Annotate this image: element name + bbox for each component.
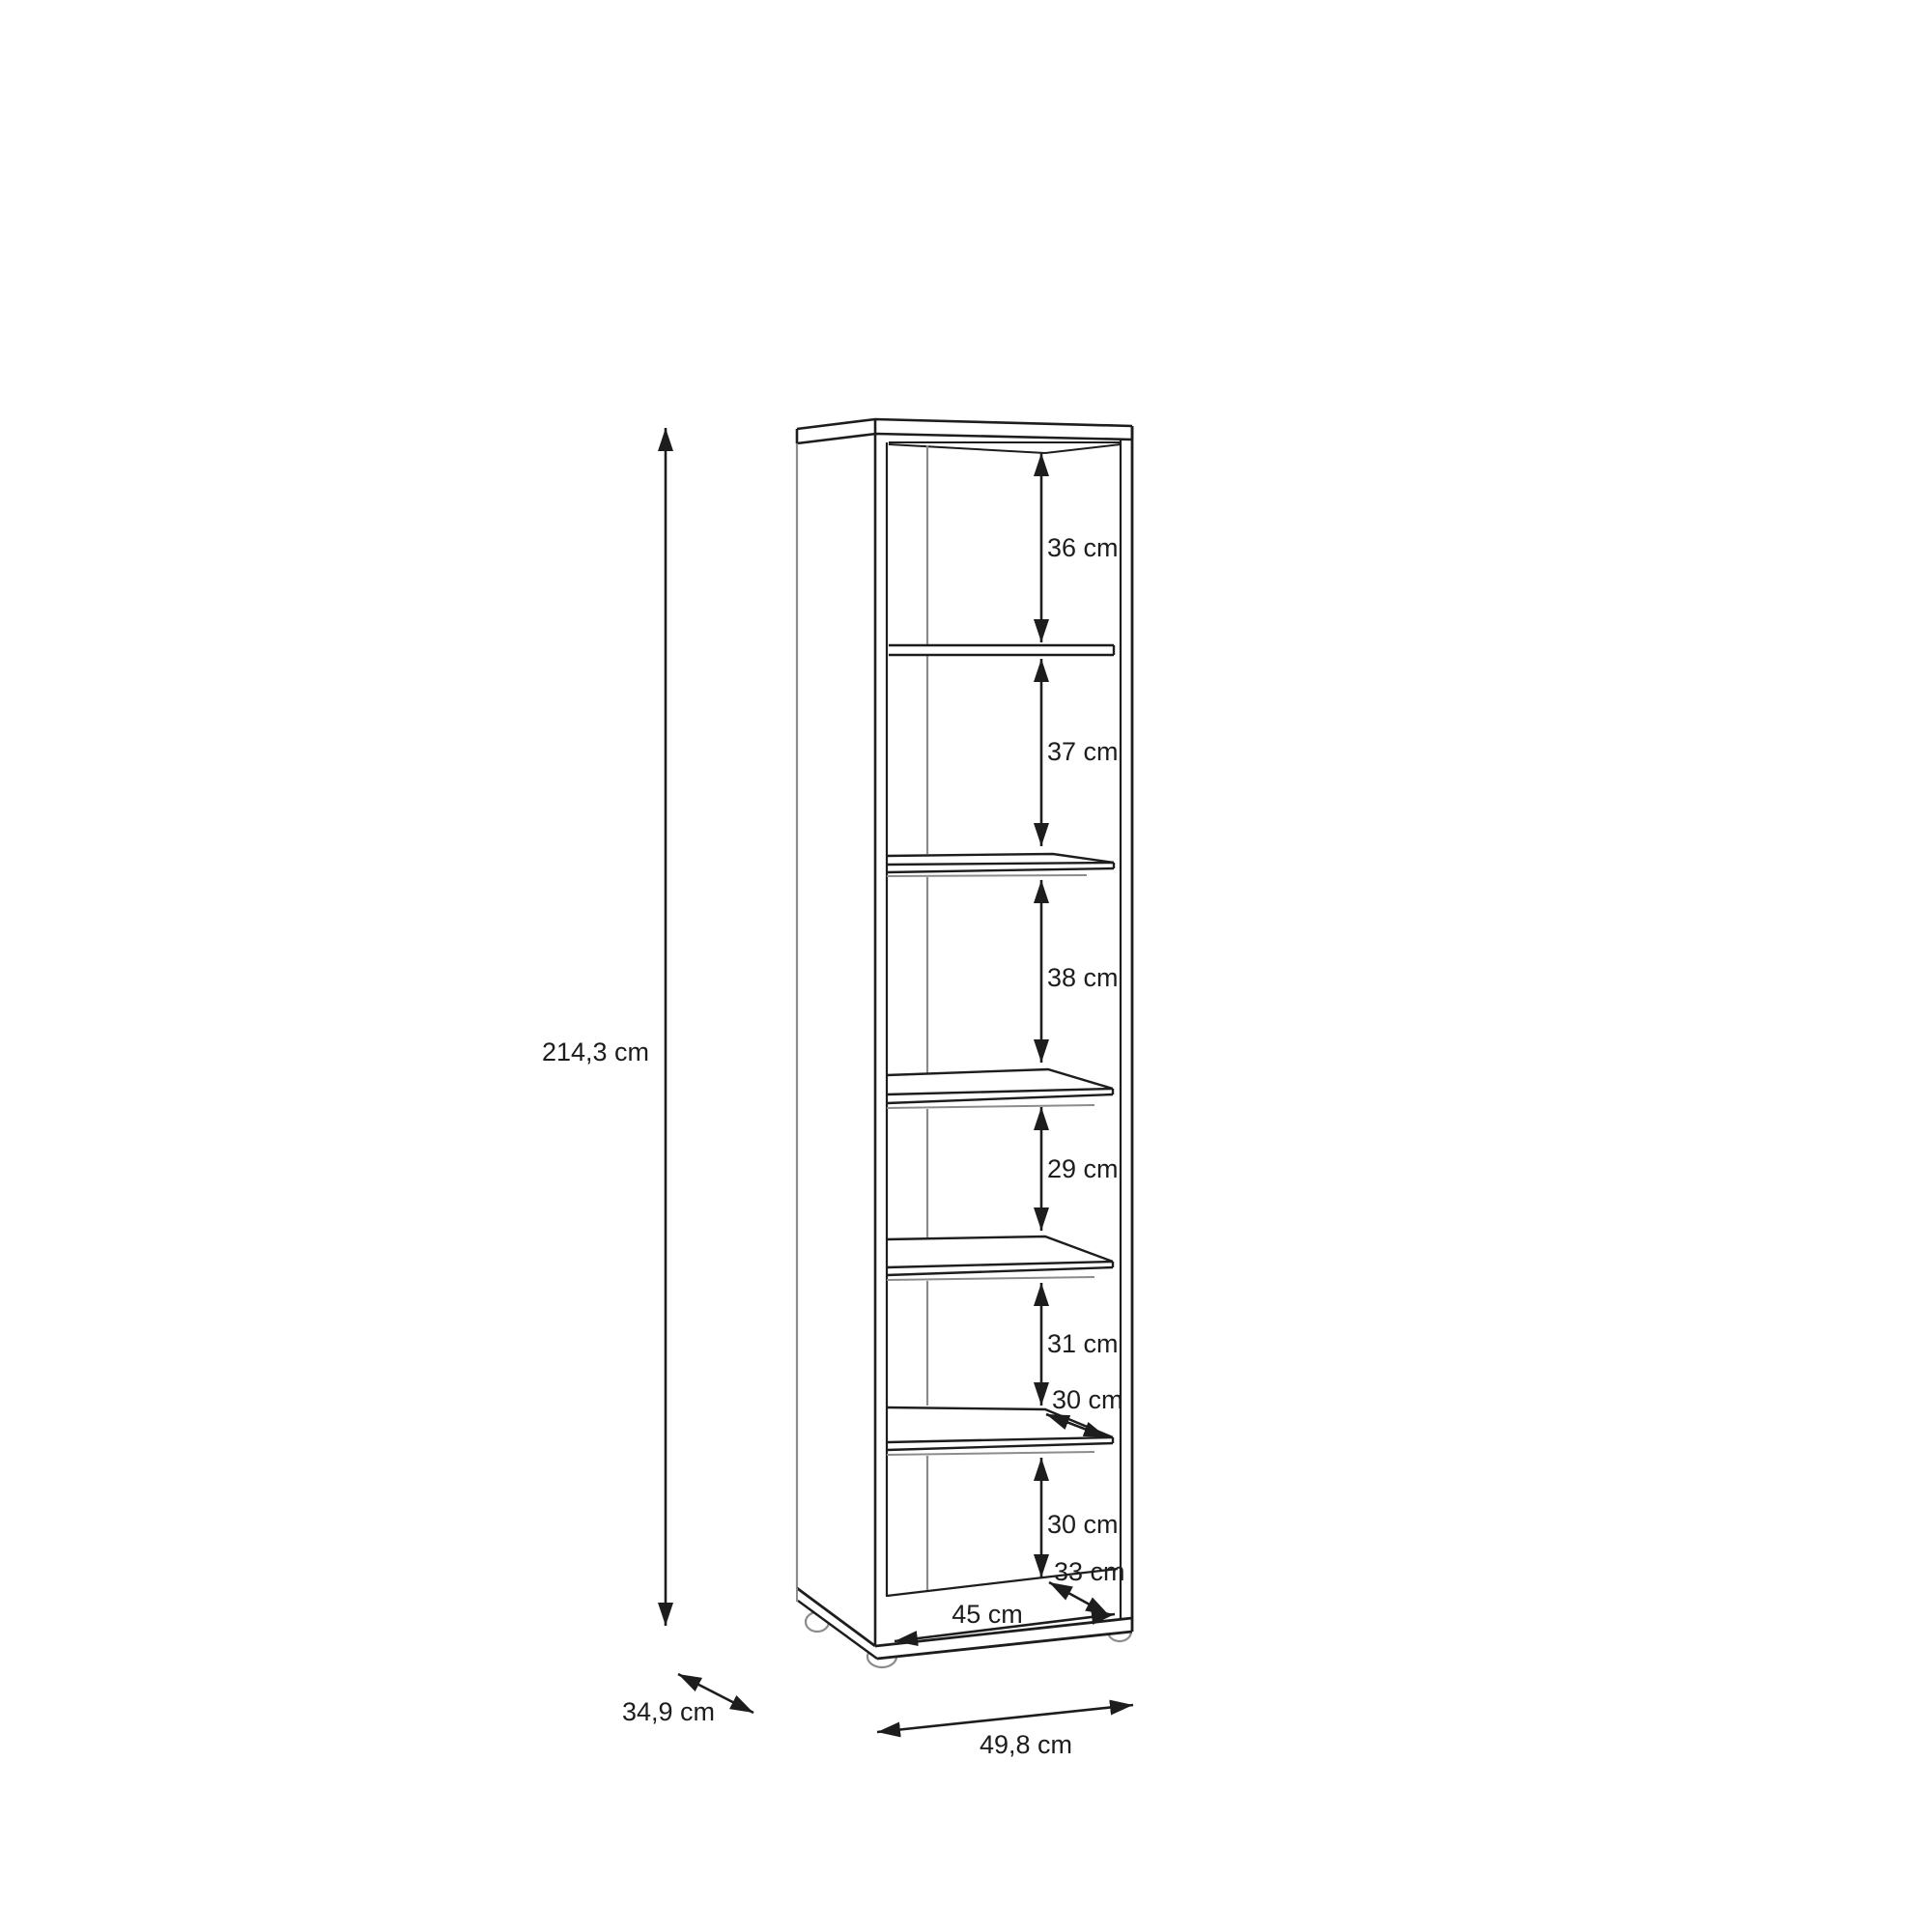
dim-bottom-inner-depth: 33 cm xyxy=(1049,1557,1125,1615)
dim-line xyxy=(1046,1414,1107,1437)
shelf-under-edge xyxy=(887,1105,1094,1108)
shelf-under-edge xyxy=(887,875,1087,876)
bookcase-dimension-drawing: 214,3 cm 36 cm 37 cm 38 cm 29 cm 31 cm xyxy=(0,0,1932,1932)
compartment-5-label: 31 cm xyxy=(1047,1329,1119,1358)
overall-depth-label: 34,9 cm xyxy=(622,1697,715,1726)
shelf-front-bottom-edge xyxy=(887,1267,1113,1275)
shelf-front-bottom-edge xyxy=(887,1443,1113,1450)
dim-line xyxy=(1049,1582,1109,1615)
compartment-6-label: 30 cm xyxy=(1047,1510,1119,1539)
dim-shelf-depth: 30 cm xyxy=(1046,1385,1123,1437)
shelf-depth-label: 30 cm xyxy=(1052,1385,1123,1414)
shelf-front-top-edge xyxy=(887,1437,1113,1442)
compartment-2-label: 37 cm xyxy=(1047,737,1119,766)
cabinet-drawing xyxy=(797,419,1132,1667)
shelf-back-edge xyxy=(887,854,1114,863)
overall-width-label: 49,8 cm xyxy=(980,1730,1072,1759)
cabinet-top-board xyxy=(797,419,1132,453)
compartment-4-label: 29 cm xyxy=(1047,1154,1119,1183)
dim-overall-height: 214,3 cm xyxy=(542,428,666,1626)
inner-width-label: 45 cm xyxy=(952,1600,1023,1629)
dim-overall-depth: 34,9 cm xyxy=(622,1674,753,1726)
shelf-back-edge xyxy=(887,1069,1113,1089)
dim-compartment-3: 38 cm xyxy=(1041,880,1119,1063)
shelf-2 xyxy=(887,854,1114,876)
dim-line xyxy=(877,1705,1133,1732)
shelf-1 xyxy=(889,645,1114,655)
shelf-back-edge xyxy=(887,1236,1113,1262)
top-inner-back-edge xyxy=(889,444,1121,453)
dim-overall-width: 49,8 cm xyxy=(877,1705,1133,1759)
shelf-5 xyxy=(887,1407,1113,1455)
shelf-under-edge xyxy=(887,1277,1094,1280)
shelf-front-bottom-edge xyxy=(887,1094,1113,1103)
bottom-inner-depth-label: 33 cm xyxy=(1054,1557,1125,1586)
shelf-3 xyxy=(887,1069,1113,1108)
top-board-back-edge xyxy=(797,419,1132,429)
compartment-1-label: 36 cm xyxy=(1047,533,1119,562)
dim-compartment-1: 36 cm xyxy=(1041,453,1119,642)
dim-compartment-2: 37 cm xyxy=(1041,659,1119,846)
dimensions: 214,3 cm 36 cm 37 cm 38 cm 29 cm 31 cm xyxy=(542,428,1133,1759)
shelf-front-top-edge xyxy=(887,1262,1113,1267)
shelf-front-top-edge xyxy=(887,863,1114,865)
dim-compartment-4: 29 cm xyxy=(1041,1107,1119,1231)
shelf-under-edge xyxy=(887,1452,1094,1455)
shelf-front-bottom-edge xyxy=(887,868,1114,872)
shelf-4 xyxy=(887,1236,1113,1280)
shelf-front-top-edge xyxy=(887,1089,1113,1094)
technical-drawing-canvas: 214,3 cm 36 cm 37 cm 38 cm 29 cm 31 cm xyxy=(0,0,1932,1932)
cabinet-carcass xyxy=(797,419,1132,1646)
overall-height-label: 214,3 cm xyxy=(542,1037,649,1066)
compartment-3-label: 38 cm xyxy=(1047,963,1119,992)
